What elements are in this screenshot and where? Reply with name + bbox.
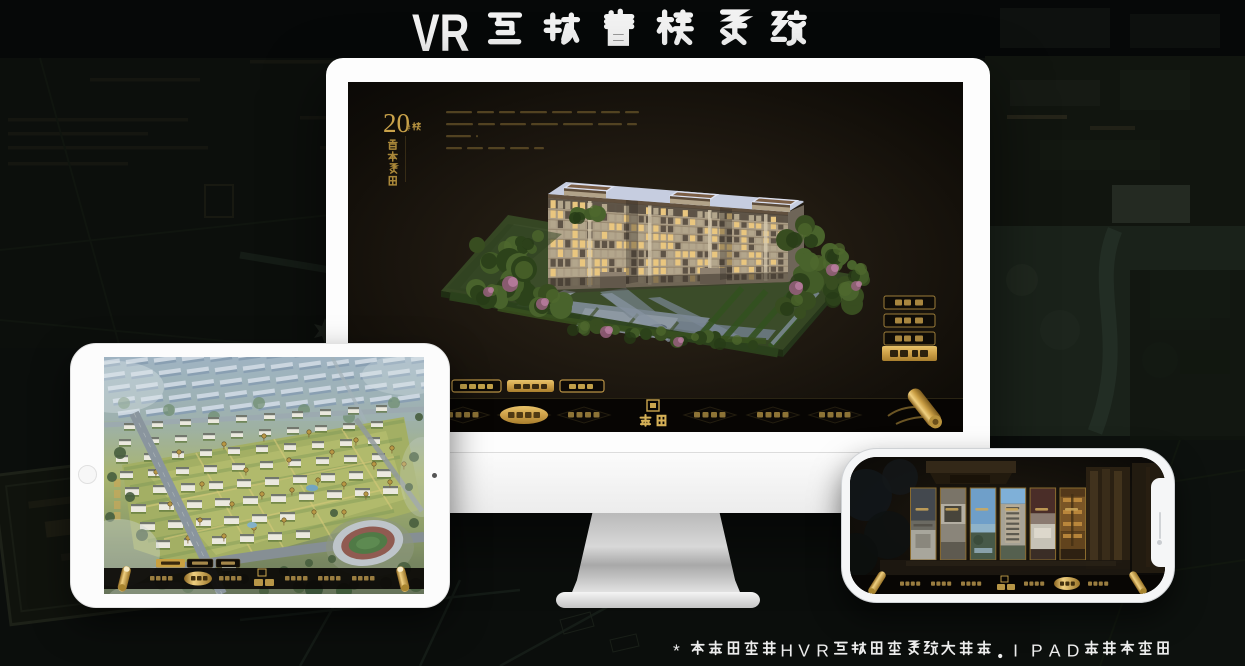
svg-text:A: A bbox=[1049, 641, 1061, 661]
svg-text:#: # bbox=[406, 123, 411, 133]
svg-text:H: H bbox=[780, 641, 793, 661]
svg-text:I: I bbox=[1013, 641, 1018, 661]
svg-text:P: P bbox=[1031, 641, 1043, 661]
svg-text:R: R bbox=[816, 641, 829, 661]
svg-text:V: V bbox=[798, 641, 810, 661]
svg-text:VR: VR bbox=[412, 5, 469, 59]
svg-text:D: D bbox=[1067, 641, 1080, 661]
svg-text:*: * bbox=[673, 641, 680, 661]
